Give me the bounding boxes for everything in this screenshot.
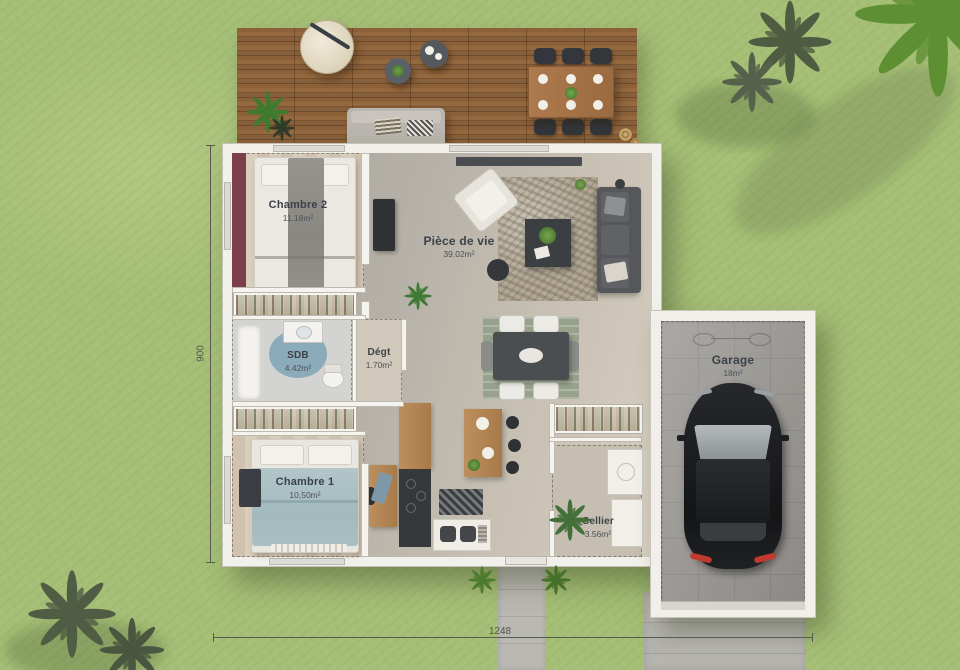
bar-stool-icon bbox=[506, 461, 519, 474]
table-plant-icon bbox=[539, 227, 556, 244]
wardrobe-icon bbox=[234, 293, 356, 317]
palm-tree-icon bbox=[100, 618, 164, 670]
plate-icon bbox=[476, 417, 489, 430]
kitchen-island-icon bbox=[464, 409, 502, 477]
washer-door bbox=[617, 463, 635, 481]
car-mirror bbox=[780, 435, 789, 441]
centerpiece bbox=[519, 348, 543, 363]
palm-tree-icon bbox=[749, 1, 832, 84]
wall bbox=[232, 431, 366, 436]
dimension-line-left bbox=[210, 145, 211, 563]
book-icon bbox=[534, 245, 550, 259]
bar-stool-icon bbox=[508, 439, 521, 452]
outdoor-chair-icon bbox=[562, 119, 584, 135]
dimension-label-left: 900 bbox=[196, 339, 207, 369]
sofa-icon bbox=[597, 187, 641, 293]
dimension-label-bottom: 1248 bbox=[478, 626, 522, 637]
dimension-tick bbox=[213, 633, 214, 642]
bench-icon bbox=[271, 544, 347, 552]
bicycle-wheel bbox=[749, 333, 771, 346]
armchair-seat bbox=[465, 179, 509, 222]
plate-icon bbox=[593, 100, 603, 110]
sink-bowl bbox=[296, 326, 312, 339]
floor-plan-scene: Chambre 2 11.18m² Pièce de vie 39.02m² S… bbox=[0, 0, 960, 670]
table-plant-icon bbox=[565, 87, 577, 99]
window-icon bbox=[224, 182, 231, 250]
garage-outline: Garage 18m² bbox=[650, 310, 816, 618]
sink-bowl bbox=[460, 526, 476, 542]
entry-wardrobe-icon bbox=[554, 405, 642, 433]
dining-table-icon bbox=[493, 332, 569, 380]
dining-chair-icon bbox=[533, 315, 559, 333]
room-degt bbox=[356, 319, 402, 405]
terrace-deck bbox=[237, 28, 637, 147]
plant-pot-icon bbox=[615, 179, 625, 189]
sofa-cushion bbox=[601, 225, 629, 255]
blanket-fold bbox=[255, 256, 355, 259]
palm-tree-icon bbox=[722, 52, 782, 112]
blanket-icon bbox=[252, 468, 358, 546]
wall bbox=[549, 437, 642, 442]
front-path bbox=[498, 563, 546, 670]
outdoor-coffee-table-icon bbox=[420, 40, 448, 68]
bicycle-icon bbox=[691, 331, 775, 347]
palm-tree-icon bbox=[855, 0, 960, 97]
sofa-pillow bbox=[374, 117, 402, 136]
potted-plant-icon bbox=[392, 65, 404, 77]
wall bbox=[401, 319, 407, 371]
palm-tree-icon bbox=[28, 570, 115, 657]
car-roof bbox=[696, 459, 770, 523]
blanket-fold bbox=[252, 500, 358, 503]
kitchen-cabinet-icon bbox=[399, 403, 431, 469]
bar-stool-icon bbox=[506, 416, 519, 429]
accent-wall bbox=[232, 153, 246, 291]
dimension-tick bbox=[206, 562, 215, 563]
sofa-pillow bbox=[604, 196, 626, 217]
window-icon bbox=[269, 558, 345, 565]
kitchen-sink-unit-icon bbox=[433, 519, 491, 551]
window-icon bbox=[224, 456, 231, 524]
house-outline: Chambre 2 11.18m² Pièce de vie 39.02m² S… bbox=[222, 143, 662, 567]
dining-chair-icon bbox=[499, 315, 525, 333]
plate-icon bbox=[482, 447, 494, 459]
island-plant-icon bbox=[468, 459, 480, 471]
bicycle-wheel bbox=[693, 333, 715, 346]
tree-shadow bbox=[5, 620, 165, 670]
coffee-table-icon bbox=[525, 219, 571, 267]
wardrobe-icon bbox=[234, 407, 356, 431]
dresser-icon bbox=[373, 199, 395, 251]
dining-chair-icon bbox=[533, 382, 559, 400]
pillow-icon bbox=[260, 445, 304, 465]
washer-icon bbox=[607, 449, 643, 495]
outdoor-chair-icon bbox=[590, 119, 612, 135]
deck-basket-icon bbox=[619, 128, 632, 141]
tree-shadow bbox=[711, 36, 960, 264]
pillow-icon bbox=[308, 445, 352, 465]
window-icon bbox=[449, 145, 549, 152]
sofa-pillow bbox=[604, 261, 629, 283]
stove-burner bbox=[406, 503, 416, 513]
car-mirror bbox=[677, 435, 686, 441]
wall bbox=[361, 153, 370, 265]
car-rear-window bbox=[700, 523, 766, 541]
outdoor-chair-icon bbox=[534, 48, 556, 64]
wall bbox=[352, 319, 357, 405]
plate-icon bbox=[538, 74, 548, 84]
toilet-tank bbox=[324, 364, 342, 373]
sink-bowl bbox=[440, 526, 456, 542]
wall bbox=[232, 315, 366, 320]
dimension-line-bottom bbox=[213, 637, 813, 638]
bed2-icon bbox=[254, 157, 356, 291]
plate-icon bbox=[538, 100, 548, 110]
wall bbox=[361, 463, 369, 557]
desk1-icon bbox=[369, 465, 397, 527]
dimension-tick bbox=[206, 145, 215, 146]
sofa-pillow bbox=[407, 120, 433, 136]
tv-console-icon bbox=[456, 157, 582, 166]
front-door-icon bbox=[505, 556, 547, 565]
window-icon bbox=[273, 145, 345, 152]
sink-icon bbox=[283, 321, 323, 343]
bicycle-frame bbox=[711, 338, 751, 339]
dining-chair-icon bbox=[481, 341, 493, 371]
plate-icon bbox=[435, 53, 442, 60]
outdoor-chair-icon bbox=[534, 119, 556, 135]
stove-burner bbox=[406, 479, 416, 489]
dining-chair-icon bbox=[499, 382, 525, 400]
bed1-icon bbox=[251, 439, 359, 553]
stove-burner bbox=[416, 491, 426, 501]
outdoor-sofa-icon bbox=[347, 108, 445, 148]
bathtub-icon bbox=[236, 324, 262, 401]
wall bbox=[232, 287, 366, 293]
blanket-icon bbox=[288, 158, 324, 290]
towel-icon bbox=[371, 472, 394, 505]
nightstand-icon bbox=[239, 469, 261, 507]
plate-icon bbox=[566, 100, 576, 110]
outdoor-chair-icon bbox=[562, 48, 584, 64]
wall bbox=[549, 510, 555, 557]
grass-tuft-icon bbox=[468, 566, 496, 594]
plate-icon bbox=[425, 46, 434, 55]
plate-icon bbox=[566, 74, 576, 84]
dish-rack bbox=[478, 525, 487, 543]
side-table-icon bbox=[487, 259, 509, 281]
garage-door bbox=[661, 601, 805, 610]
kitchen-rug bbox=[439, 489, 483, 515]
outdoor-chair-icon bbox=[590, 48, 612, 64]
car-icon bbox=[684, 383, 782, 569]
kitchen-counter-icon bbox=[399, 469, 431, 547]
tree-shadow bbox=[675, 83, 815, 147]
outdoor-side-table-icon bbox=[385, 58, 411, 84]
plant-pot-icon bbox=[575, 179, 586, 190]
car-windshield bbox=[694, 425, 772, 459]
shelf-icon bbox=[611, 499, 643, 547]
outdoor-dining-table-icon bbox=[528, 66, 614, 118]
dimension-tick bbox=[812, 633, 813, 642]
plate-icon bbox=[593, 74, 603, 84]
wall bbox=[232, 401, 404, 407]
